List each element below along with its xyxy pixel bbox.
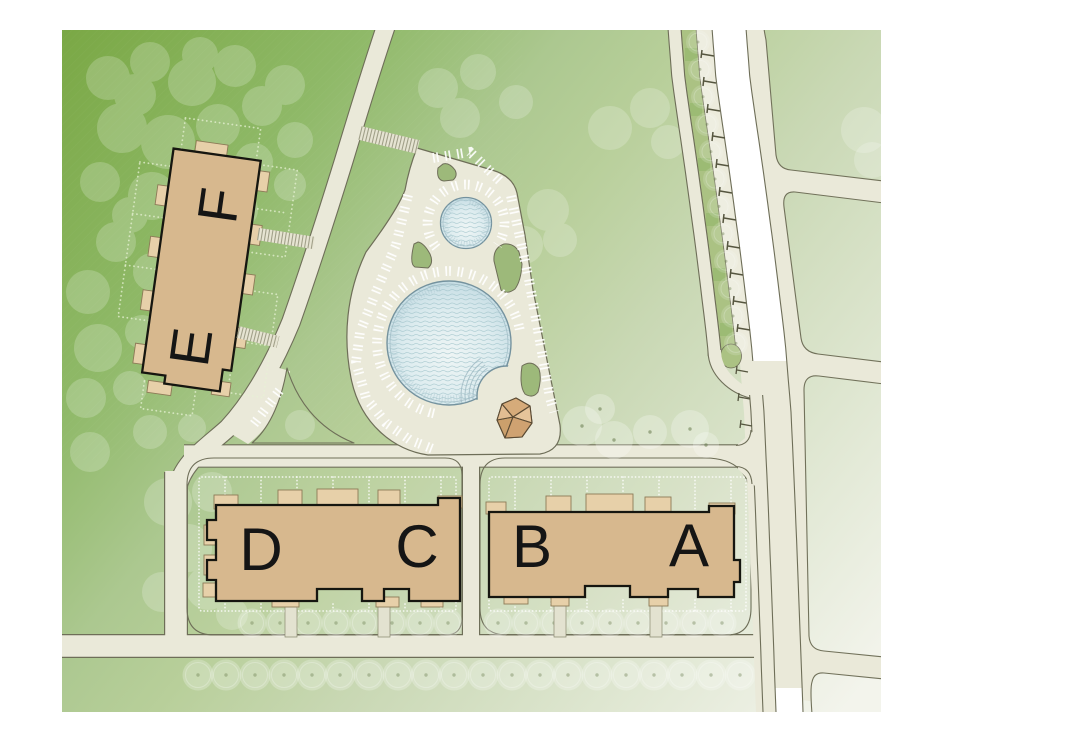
svg-text:C: C: [395, 513, 438, 580]
svg-text:B: B: [512, 513, 552, 580]
svg-text:D: D: [239, 516, 282, 583]
svg-text:A: A: [669, 512, 709, 579]
